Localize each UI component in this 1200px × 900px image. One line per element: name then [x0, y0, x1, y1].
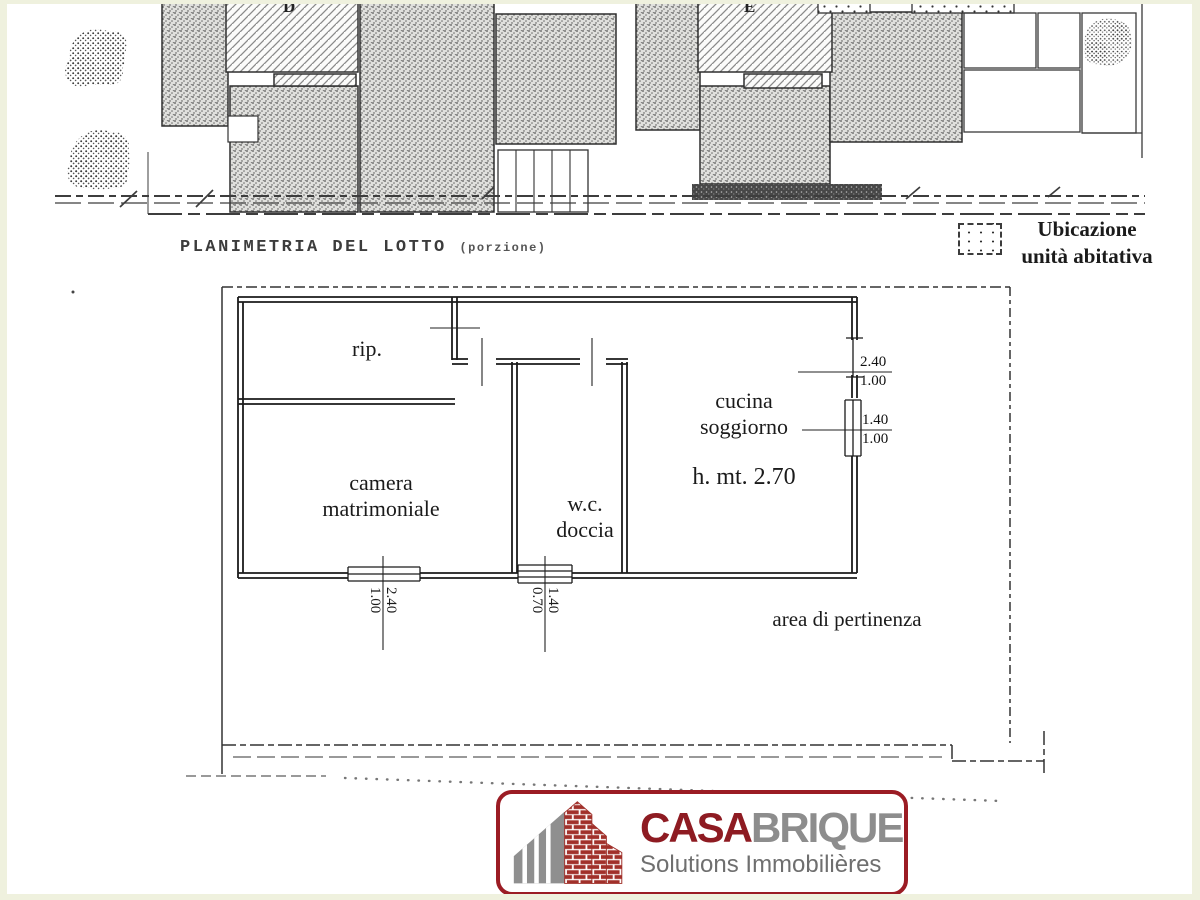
site-ground-lines: [55, 152, 1145, 214]
bedroom-line1: camera: [271, 470, 491, 496]
outdoor-area-label: area di pertinenza: [737, 606, 957, 632]
site-dark-strip: [692, 184, 882, 200]
ceiling-height-label: h. mt. 2.70: [634, 464, 854, 490]
dim-right-lower-top: 1.40: [862, 412, 888, 429]
site-plan-title: PLANIMETRIA DEL LOTTO (porzione): [180, 238, 546, 257]
legend-unit-swatch: [958, 223, 1002, 255]
kitchen-line1: cucina: [634, 388, 854, 414]
dim-bl-top: 2.40: [383, 587, 399, 613]
site-plan-title-main: PLANIMETRIA DEL LOTTO: [180, 238, 447, 257]
room-wc-label: w.c. doccia: [525, 491, 645, 543]
bedroom-line2: matrimoniale: [271, 496, 491, 522]
brick-house-icon: [512, 798, 630, 888]
legend-text: Ubicazione unità abitativa: [1008, 216, 1166, 270]
dim-bottom-right-window: 1.40 0.70: [529, 587, 561, 613]
dim-bl-bottom: 1.00: [367, 587, 383, 613]
window-sills: [348, 338, 863, 583]
scan-edge: [0, 0, 1200, 4]
logo-text: CASABRIQUE Solutions Immobilières: [640, 807, 902, 879]
site-plan-drawing: [55, 0, 1145, 214]
site-plan-title-suffix: (porzione): [459, 241, 546, 255]
brand-name: CASABRIQUE: [640, 807, 902, 849]
brand-tagline: Solutions Immobilières: [640, 851, 902, 879]
dim-right-upper-top: 2.40: [860, 354, 886, 371]
dim-br-top: 1.40: [545, 587, 561, 613]
kitchen-line2: soggiorno: [634, 414, 854, 440]
dim-right-upper-bottom: 1.00: [860, 373, 886, 390]
legend-line1: Ubicazione: [1008, 216, 1166, 243]
dim-br-bottom: 0.70: [529, 587, 545, 613]
plan-drawing: [0, 0, 1200, 900]
floor-plan-drawing: [72, 287, 1045, 801]
scan-edge: [0, 894, 1200, 900]
brand-brique: BRIQUE: [751, 804, 902, 851]
room-bedroom-label: camera matrimoniale: [271, 470, 491, 522]
dim-right-lower-bottom: 1.00: [862, 431, 888, 448]
scan-speck: [72, 291, 75, 294]
scanned-floorplan-page: PLANIMETRIA DEL LOTTO (porzione) D E Ubi…: [0, 0, 1200, 900]
room-kitchen-label: cucina soggiorno: [634, 388, 854, 440]
wc-line2: doccia: [525, 517, 645, 543]
dim-bottom-left-window: 2.40 1.00: [367, 587, 399, 613]
site-white-notch: [228, 116, 258, 142]
room-storage-label: rip.: [352, 336, 382, 362]
agency-logo: CASABRIQUE Solutions Immobilières: [496, 790, 908, 896]
scan-edge: [0, 0, 7, 900]
scan-edge: [1192, 0, 1200, 900]
legend-line2: unità abitativa: [1008, 243, 1166, 270]
brand-casa: CASA: [640, 804, 751, 851]
wc-line1: w.c.: [525, 491, 645, 517]
